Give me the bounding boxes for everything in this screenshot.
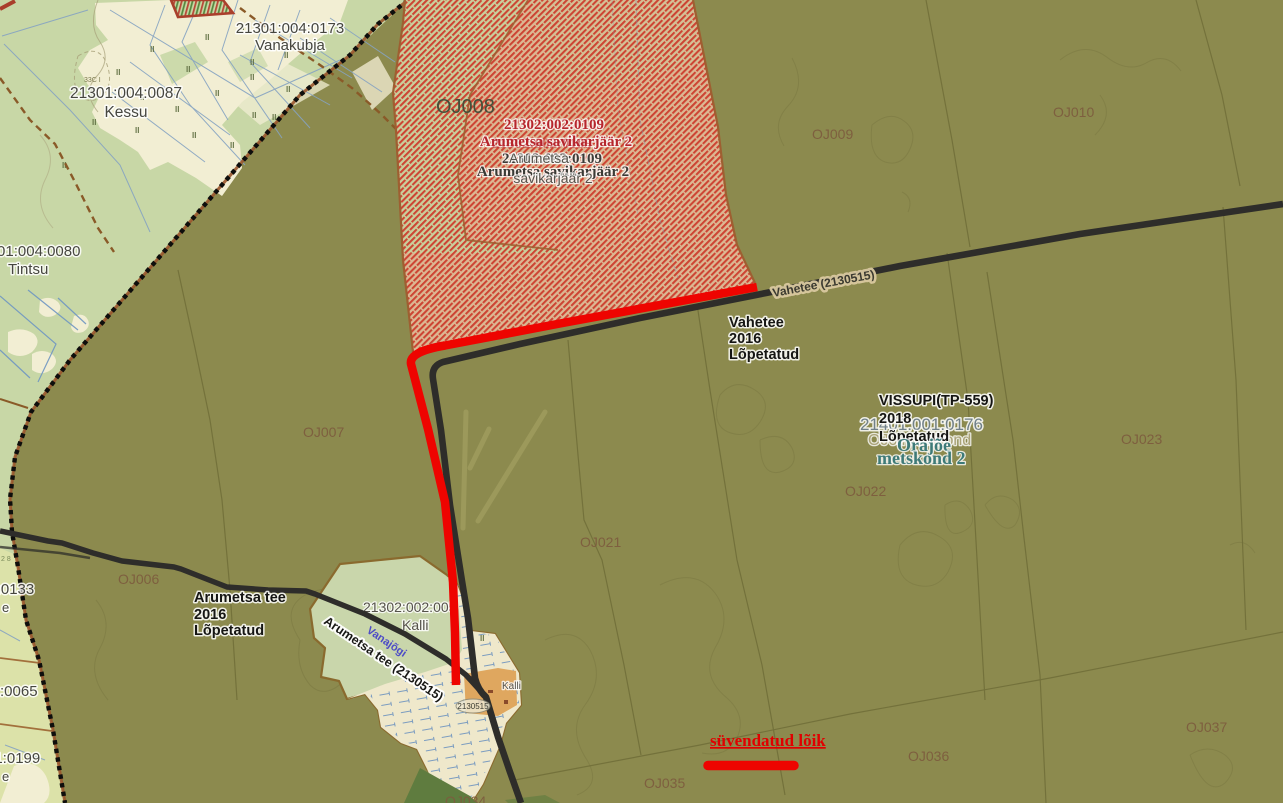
svg-text:II: II bbox=[286, 85, 290, 94]
svg-text:Vahetee: Vahetee bbox=[729, 315, 784, 331]
svg-text:OJ023: OJ023 bbox=[1121, 431, 1162, 447]
svg-text:21301:004:0173: 21301:004:0173 bbox=[236, 20, 344, 37]
svg-text:21302:002:005: 21302:002:005 bbox=[363, 599, 457, 615]
svg-text::0065: :0065 bbox=[0, 683, 38, 700]
svg-text:II: II bbox=[250, 73, 254, 82]
svg-text:II: II bbox=[186, 65, 190, 74]
svg-text:II: II bbox=[175, 105, 179, 114]
svg-text:II: II bbox=[205, 33, 209, 42]
svg-text:01:0199: 01:0199 bbox=[0, 750, 40, 767]
svg-text:OJ036: OJ036 bbox=[908, 748, 949, 764]
svg-text:Kessu: Kessu bbox=[104, 104, 147, 121]
svg-text:II: II bbox=[215, 89, 219, 98]
svg-text:OJ035: OJ035 bbox=[644, 775, 685, 791]
svg-text:Vanakubja: Vanakubja bbox=[255, 37, 325, 54]
svg-text:Kalli: Kalli bbox=[502, 681, 521, 692]
svg-text:2016: 2016 bbox=[194, 607, 226, 623]
svg-text:OJ034: OJ034 bbox=[445, 793, 486, 803]
svg-text:Tintsu: Tintsu bbox=[8, 261, 48, 278]
svg-text:OJ007: OJ007 bbox=[303, 424, 344, 440]
svg-text:Arumetsa: Arumetsa bbox=[509, 150, 569, 166]
svg-text:OJ008: OJ008 bbox=[436, 96, 495, 118]
svg-text:21301:004:0087: 21301:004:0087 bbox=[70, 85, 182, 102]
svg-text:Kalli: Kalli bbox=[402, 617, 428, 633]
svg-text:OJ021: OJ021 bbox=[580, 534, 621, 550]
svg-text:VISSUPI(TP-559): VISSUPI(TP-559) bbox=[879, 393, 994, 409]
svg-text:21302:002:0109: 21302:002:0109 bbox=[504, 117, 604, 133]
svg-text:II: II bbox=[250, 58, 254, 67]
svg-text:II: II bbox=[92, 118, 96, 127]
svg-text:II: II bbox=[135, 126, 139, 135]
svg-text:21301:004:0080: 21301:004:0080 bbox=[0, 243, 80, 260]
svg-text:Arumetsa tee: Arumetsa tee bbox=[194, 590, 286, 606]
svg-text:savikarjäär 2: savikarjäär 2 bbox=[513, 170, 593, 186]
svg-text:II: II bbox=[192, 131, 196, 140]
svg-text:e: e bbox=[2, 769, 9, 784]
svg-text:OJ009: OJ009 bbox=[812, 126, 853, 142]
svg-text:Lõpetatud: Lõpetatud bbox=[194, 623, 264, 639]
svg-text:2018: 2018 bbox=[879, 411, 911, 427]
svg-text:OJ006: OJ006 bbox=[118, 571, 159, 587]
svg-text:OJ010: OJ010 bbox=[1053, 104, 1094, 120]
svg-text:01:0133: 01:0133 bbox=[0, 581, 34, 598]
svg-text:II: II bbox=[116, 68, 120, 77]
svg-text:metskond 2: metskond 2 bbox=[877, 448, 966, 468]
svg-text:2016: 2016 bbox=[729, 331, 761, 347]
svg-text:OJ037: OJ037 bbox=[1186, 719, 1227, 735]
svg-text:II: II bbox=[150, 45, 154, 54]
svg-text:süvendatud lõik: süvendatud lõik bbox=[710, 731, 826, 750]
svg-text:33C I: 33C I bbox=[84, 77, 101, 84]
svg-text:II: II bbox=[480, 634, 484, 643]
svg-text:II: II bbox=[252, 111, 256, 120]
svg-text:II: II bbox=[230, 141, 234, 150]
svg-text:OJ022: OJ022 bbox=[845, 483, 886, 499]
svg-text:Lõpetatud: Lõpetatud bbox=[729, 347, 799, 363]
svg-text:e: e bbox=[2, 600, 9, 615]
svg-text:2 8: 2 8 bbox=[1, 556, 11, 563]
svg-text:2130515: 2130515 bbox=[457, 702, 489, 711]
